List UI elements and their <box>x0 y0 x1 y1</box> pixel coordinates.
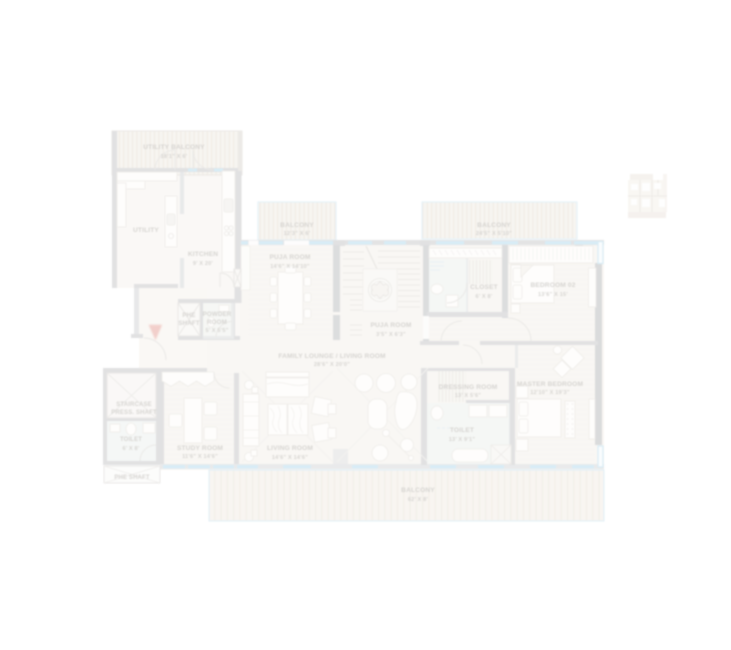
svg-text:BALCONY: BALCONY <box>401 487 435 494</box>
svg-text:62’ X 8’: 62’ X 8’ <box>408 497 428 503</box>
svg-text:DRESSING ROOM: DRESSING ROOM <box>439 384 498 391</box>
svg-text:13’6” X 15’: 13’6” X 15’ <box>538 292 568 298</box>
svg-text:12’3” X 6’: 12’3” X 6’ <box>284 231 311 237</box>
svg-text:CLOSET: CLOSET <box>470 284 498 291</box>
svg-text:6’ X 8’: 6’ X 8’ <box>476 294 493 300</box>
svg-text:KITCHEN: KITCHEN <box>188 251 218 258</box>
svg-text:6’ X 8’: 6’ X 8’ <box>123 446 140 452</box>
svg-text:PHE: PHE <box>182 312 195 319</box>
svg-text:13’ X 9’1”: 13’ X 9’1” <box>449 437 475 443</box>
svg-text:PRESS. SHAFT: PRESS. SHAFT <box>111 410 157 416</box>
svg-text:13’ X 5’6”: 13’ X 5’6” <box>455 393 481 399</box>
svg-text:UTILITY BALCONY: UTILITY BALCONY <box>143 144 205 151</box>
svg-text:24’5” X 5’10”: 24’5” X 5’10” <box>476 231 512 237</box>
svg-text:POWDER: POWDER <box>203 311 232 318</box>
svg-text:PHE SHAFT: PHE SHAFT <box>114 475 150 481</box>
svg-text:18’1” X 6’: 18’1” X 6’ <box>161 154 188 160</box>
svg-text:5’ X 5’5”: 5’ X 5’5” <box>205 328 228 334</box>
svg-text:TOILET: TOILET <box>120 437 142 443</box>
svg-text:STUDY ROOM: STUDY ROOM <box>177 445 223 452</box>
svg-text:LIVING ROOM: LIVING ROOM <box>267 445 313 452</box>
svg-text:28’6” X 20’0”: 28’6” X 20’0” <box>314 362 350 368</box>
svg-text:3’5” X 6’3”: 3’5” X 6’3” <box>376 332 406 338</box>
svg-text:14’6” X 14’6”: 14’6” X 14’6” <box>272 455 308 461</box>
svg-text:UTILITY: UTILITY <box>133 227 159 234</box>
svg-text:PUJA ROOM: PUJA ROOM <box>370 322 411 329</box>
svg-text:BALCONY: BALCONY <box>477 222 511 229</box>
svg-text:TOILET: TOILET <box>450 427 474 434</box>
svg-text:SHAFT: SHAFT <box>178 320 199 327</box>
svg-text:14’6” X 14’10”: 14’6” X 14’10” <box>270 264 309 270</box>
svg-text:12’10” X 19’3”: 12’10” X 19’3” <box>530 390 569 396</box>
svg-text:9’ X 20’: 9’ X 20’ <box>193 261 213 267</box>
svg-text:STAIRCASE: STAIRCASE <box>116 402 152 408</box>
svg-text:MASTER BEDROOM: MASTER BEDROOM <box>517 381 584 388</box>
svg-text:FAMILY LOUNGE / LIVING ROOM: FAMILY LOUNGE / LIVING ROOM <box>278 353 386 360</box>
svg-text:ROOM: ROOM <box>207 319 227 326</box>
svg-text:BALCONY: BALCONY <box>280 222 314 229</box>
svg-text:BEDROOM 02: BEDROOM 02 <box>530 282 575 289</box>
svg-text:PUJA ROOM: PUJA ROOM <box>269 254 310 261</box>
svg-text:11’6” X 14’6”: 11’6” X 14’6” <box>182 454 218 460</box>
